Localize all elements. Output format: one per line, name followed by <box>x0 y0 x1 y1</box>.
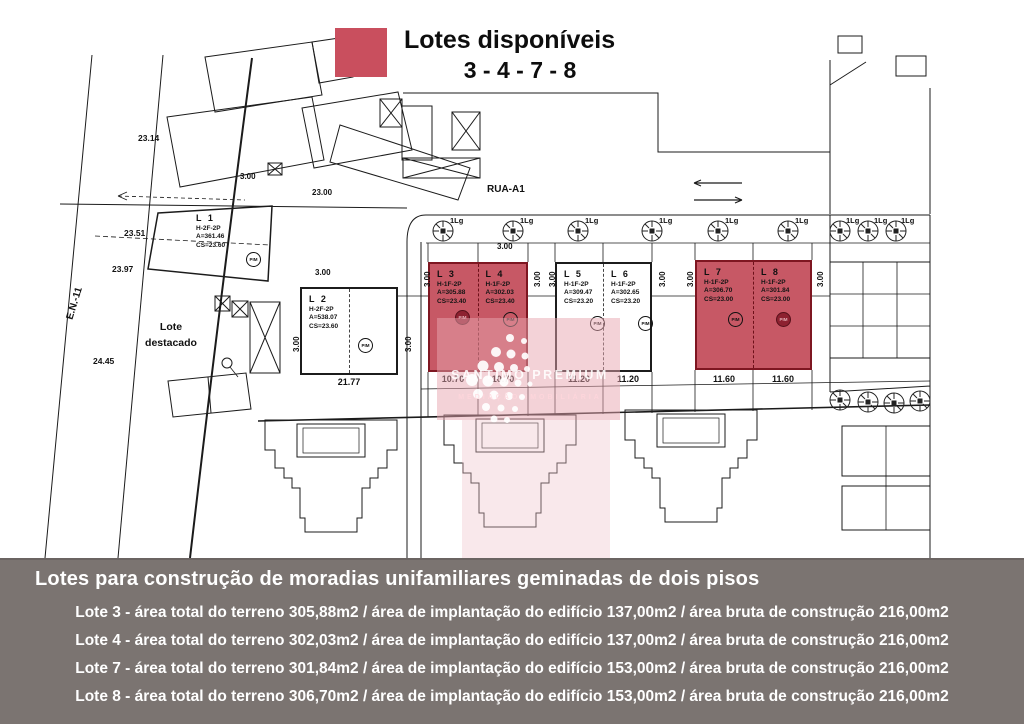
pim-marker: PIM <box>503 312 518 327</box>
tree-count-label: 1Lg <box>725 216 738 225</box>
lot-area: A=538.07 <box>309 314 349 321</box>
lot-area: A=305.88 <box>437 289 478 296</box>
lot-area: A=302.03 <box>486 289 527 296</box>
pim-marker: PIM <box>776 312 791 327</box>
lot-block-2: L 2 H-2F-2P A=538.07 CS=23.60 <box>300 287 398 375</box>
tree-count-label: 1Lg <box>901 216 914 225</box>
lot-id: L 8 <box>761 267 810 277</box>
elevation-label: 24.45 <box>93 356 114 366</box>
lot-cs: CS=23.00 <box>704 296 753 303</box>
elevation-label: 23.97 <box>112 264 133 274</box>
lot-block-7-8: L 7 H-1F-2P A=306.70 CS=23.00 L 8 H-1F-2… <box>695 260 812 370</box>
lot-type: H-1F-2P <box>761 279 810 286</box>
dimension-label: 3.00 <box>533 271 542 287</box>
legend-available-lot-numbers: 3 - 4 - 7 - 8 <box>404 57 636 84</box>
tree-count-label: 1Lg <box>846 216 859 225</box>
tree-icon <box>858 392 878 412</box>
lot-width-label: 11.60 <box>754 374 812 384</box>
lot-type: H-1F-2P <box>564 281 603 288</box>
lot-width-label: 11.60 <box>695 374 753 384</box>
lot-1-label: L 1 H-2F-2P A=361.46 CS=23.60 <box>196 213 225 249</box>
pim-marker: PIM <box>638 316 653 331</box>
lot-type: H-1F-2P <box>611 281 650 288</box>
lot-id: L 5 <box>564 269 603 279</box>
lot-id: L 4 <box>486 269 527 279</box>
lot-8-summary: Lote 8 - área total do terreno 306,70m2 … <box>75 688 949 706</box>
tree-count-label: 1Lg <box>795 216 808 225</box>
direction-arrows-icon <box>694 180 742 203</box>
site-plan-flyer: Lotes disponíveis 3 - 4 - 7 - 8 L 1 H-2F… <box>0 0 1024 724</box>
lot-area: A=309.47 <box>564 289 603 296</box>
lot-cs: CS=23.00 <box>761 296 810 303</box>
legend-swatch <box>335 28 387 77</box>
plan-area: Lotes disponíveis 3 - 4 - 7 - 8 L 1 H-2F… <box>0 0 1024 558</box>
tree-count-label: 1Lg <box>659 216 672 225</box>
footer: Lotes para construção de moradias unifam… <box>0 558 1024 724</box>
lot-cs: CS=23.60 <box>309 323 349 330</box>
lot-width-label: 11.20 <box>604 374 652 384</box>
lot-id: L 7 <box>704 267 753 277</box>
tree-count-label: 1Lg <box>585 216 598 225</box>
dimension-label: 3.00 <box>658 271 667 287</box>
lot-area: A=302.65 <box>611 289 650 296</box>
dimension-label: 3.00 <box>292 336 301 352</box>
lot-type: H-1F-2P <box>486 281 527 288</box>
elevation-label: 23.14 <box>138 133 159 143</box>
lot-7-summary: Lote 7 - área total do terreno 301,84m2 … <box>75 660 949 678</box>
tree-count-label: 1Lg <box>874 216 887 225</box>
dimension-label: 3.00 <box>686 271 695 287</box>
lot-cs: CS=23.40 <box>437 298 478 305</box>
dimension-label: 3.00 <box>548 271 557 287</box>
lot-width-label: 10.70 <box>428 374 478 384</box>
lot-cs: CS=23.20 <box>611 298 650 305</box>
lot-type: H-2F-2P <box>196 225 225 232</box>
pim-marker: PIM <box>455 310 470 325</box>
pim-marker: PIM <box>590 316 605 331</box>
detached-lot-label: Lote destacado <box>134 320 208 352</box>
pim-marker: PIM <box>358 338 373 353</box>
lot-id: L 1 <box>196 213 225 223</box>
tree-icon <box>830 390 850 410</box>
lot-cs: CS=23.60 <box>196 242 225 249</box>
lot-type: H-2F-2P <box>309 306 349 313</box>
elevation-label: 23.51 <box>124 228 145 238</box>
lot-id: L 6 <box>611 269 650 279</box>
dimension-label: 3.00 <box>315 268 331 277</box>
lot-cs: CS=23.20 <box>564 298 603 305</box>
lot-width-label: 11.20 <box>555 374 603 384</box>
legend-title: Lotes disponíveis <box>404 26 644 55</box>
lot-area: A=301.84 <box>761 287 810 294</box>
lot-3-summary: Lote 3 - área total do terreno 305,88m2 … <box>75 604 949 622</box>
dimension-label: 3.00 <box>423 271 432 287</box>
dimension-label: 3.00 <box>816 271 825 287</box>
street-name-label: RUA-A1 <box>487 184 525 195</box>
lot-block-5-6: L 5 H-1F-2P A=309.47 CS=23.20 L 6 H-1F-2… <box>555 262 652 372</box>
lot-id: L 2 <box>309 294 349 304</box>
pim-marker: PIM <box>728 312 743 327</box>
lot-width-label: 21.77 <box>300 377 398 387</box>
dimension-label: 23.00 <box>312 188 332 197</box>
tree-icon <box>884 393 904 413</box>
footer-title: Lotes para construção de moradias unifam… <box>35 568 1024 591</box>
lot-4-summary: Lote 4 - área total do terreno 302,03m2 … <box>75 632 949 650</box>
lot-cs: CS=23.40 <box>486 298 527 305</box>
tree-count-label: 1Lg <box>450 216 463 225</box>
lot-area: A=306.70 <box>704 287 753 294</box>
lot-id: L 3 <box>437 269 478 279</box>
tree-count-label: 1Lg <box>520 216 533 225</box>
dimension-label: 3.00 <box>497 242 513 251</box>
dimension-label: 3.00 <box>404 336 413 352</box>
dimension-label: 3.00 <box>240 172 256 181</box>
footer-lines: Lote 3 - área total do terreno 305,88m2 … <box>0 604 1024 706</box>
lot-type: H-1F-2P <box>704 279 753 286</box>
pim-marker: PIM <box>246 252 261 267</box>
lot-width-label: 10.70 <box>478 374 528 384</box>
tree-icon <box>910 391 930 411</box>
lot-type: H-1F-2P <box>437 281 478 288</box>
lot-area: A=361.46 <box>196 233 225 240</box>
